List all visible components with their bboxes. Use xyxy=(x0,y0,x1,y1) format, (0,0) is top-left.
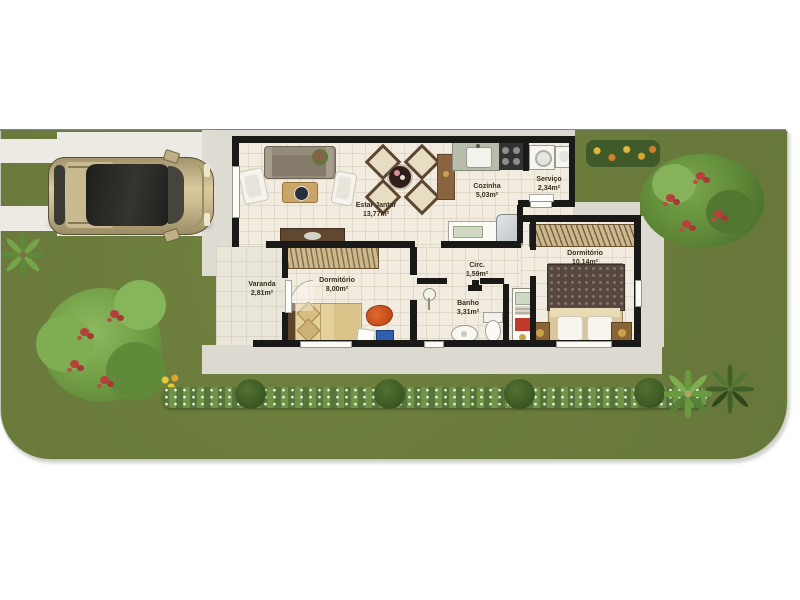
room-label-dormitorio-suite: Dormitório10,14m² xyxy=(545,250,625,268)
wall-porch-lower xyxy=(282,312,288,342)
wall-bath-top-left xyxy=(417,278,447,284)
wall-left-lower xyxy=(232,216,239,247)
stove xyxy=(499,143,524,170)
toilet-bowl xyxy=(485,320,501,342)
hedge-shrub-3 xyxy=(504,379,535,409)
service-door-gap xyxy=(530,201,552,208)
window-bedroom2 xyxy=(300,341,352,348)
tree-bottom-left xyxy=(36,276,174,410)
car-windshield xyxy=(168,166,184,224)
patio-bottom xyxy=(202,345,662,374)
room-label-varanda: Varanda2,81m² xyxy=(227,281,297,299)
wall-suite-west-lower xyxy=(530,276,536,342)
room-label-circ: Circ.1,59m² xyxy=(447,262,507,280)
room-label-banho: Banho3,31m² xyxy=(438,300,498,318)
wardrobe-bedroom2 xyxy=(287,247,379,269)
wall-hall-top xyxy=(441,241,521,248)
room-label-estar: Estar Jantar13,77m² xyxy=(336,202,416,220)
wall-bath-west-upper xyxy=(410,247,417,275)
sofa-plant xyxy=(312,149,328,165)
shower-hose xyxy=(428,298,430,310)
car-headlight-top xyxy=(204,164,210,177)
window-bath xyxy=(424,341,444,348)
wall-porch-upper xyxy=(282,248,288,278)
wall-left-upper xyxy=(232,143,239,167)
car-hood-line-1 xyxy=(188,164,204,226)
palm-bottom-right xyxy=(664,370,712,418)
window-suite-south xyxy=(556,341,612,348)
wall-service-east xyxy=(569,143,575,205)
double-bed-blanket xyxy=(547,264,625,311)
kitchen-counter xyxy=(452,142,500,171)
wall-living-bottom xyxy=(266,241,415,248)
hedge-shrub-2 xyxy=(374,379,405,409)
bush-top-right xyxy=(640,154,764,248)
fern-bottom-right xyxy=(706,364,754,414)
wall-bath-east xyxy=(503,284,509,342)
hedge-shrub-1 xyxy=(235,379,266,409)
washing-machine xyxy=(529,145,555,170)
wall-bath-west-lower xyxy=(410,300,417,343)
coffee-table xyxy=(282,182,318,203)
car-headlight-bottom xyxy=(204,213,210,226)
dining-table xyxy=(389,166,411,188)
car-rear-window xyxy=(54,165,65,225)
wall-fridge-east xyxy=(517,205,523,243)
wall-suite-top xyxy=(518,215,641,222)
window-suite-east xyxy=(635,280,642,307)
car-glass xyxy=(86,164,170,226)
hall-door-marker-base xyxy=(468,285,482,291)
floor-plan-scene: Estar Jantar13,77m² Cozinha5,03m² Serviç… xyxy=(0,0,800,600)
wall-kitchen-service xyxy=(523,141,529,171)
flower-bed-top xyxy=(586,140,660,167)
room-label-cozinha: Cozinha5,03m² xyxy=(452,183,522,201)
room-label-servico: Serviço2,34m² xyxy=(514,176,584,194)
window-living xyxy=(232,166,240,218)
wardrobe-suite xyxy=(529,224,636,247)
hedge-shrub-4 xyxy=(634,378,665,408)
room-label-dormitorio-2: Dormitório8,00m² xyxy=(297,277,377,295)
car xyxy=(46,152,216,238)
wall-suite-west-upper xyxy=(530,222,536,250)
palm-left xyxy=(2,234,44,276)
